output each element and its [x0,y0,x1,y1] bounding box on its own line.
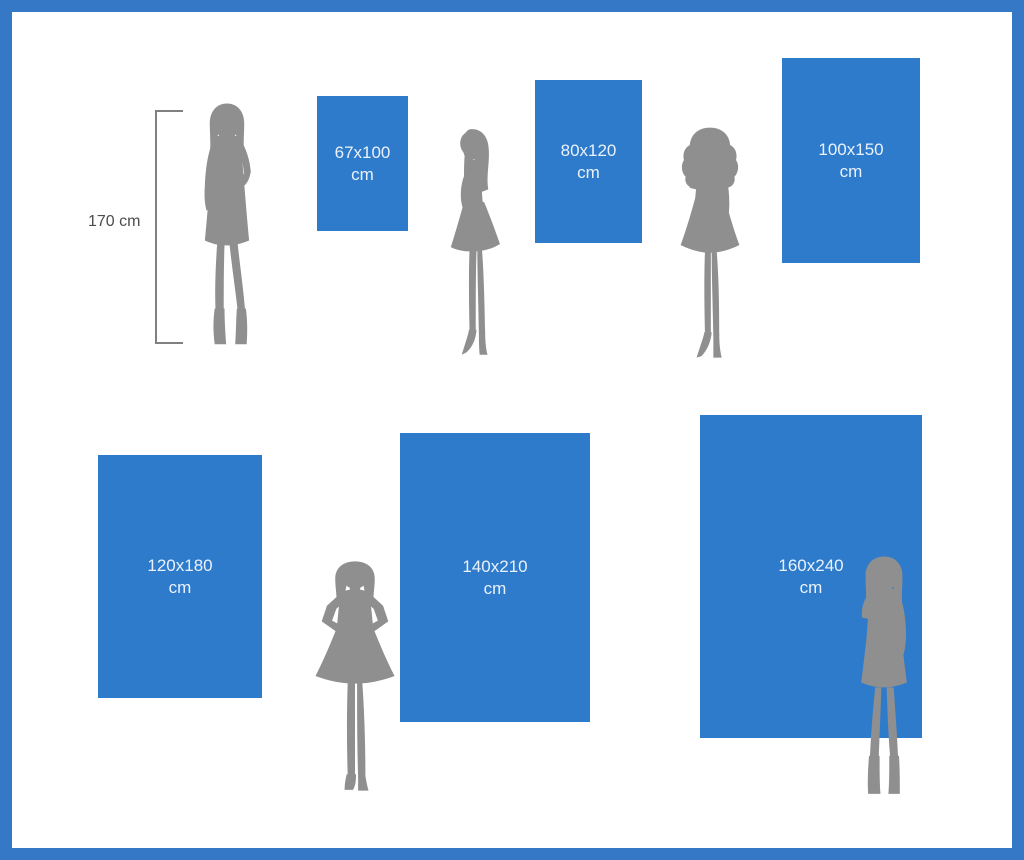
size-label: 120x180 [147,555,212,577]
woman-silhouette-front-boots-icon [186,101,268,350]
size-unit: cm [169,577,192,599]
size-label: 100x150 [818,139,883,161]
size-label: 80x120 [561,140,617,162]
size-unit: cm [484,578,507,600]
size-label: 160x240 [778,555,843,577]
woman-silhouette-profile-icon [436,127,514,361]
size-unit: cm [800,577,823,599]
size-rect-80x120: 80x120 cm [535,80,642,243]
size-unit: cm [840,161,863,183]
size-comparison-diagram: 170 cm 67x100 cm 80x120 cm [0,0,1024,860]
size-rect-100x150: 100x150 cm [782,58,920,263]
size-label: 140x210 [462,556,527,578]
woman-silhouette-hands-on-hips-icon [303,559,407,793]
woman-silhouette-hand-on-chin-icon [840,554,928,798]
size-unit: cm [577,162,600,184]
woman-silhouette-curly-hair-icon [668,126,752,364]
reference-height-label: 170 cm [88,213,152,231]
size-rect-67x100: 67x100 cm [317,96,408,231]
size-rect-140x210: 140x210 cm [400,433,590,722]
measure-bracket [155,110,185,344]
size-unit: cm [351,164,374,186]
size-label: 67x100 [335,142,391,164]
size-rect-120x180: 120x180 cm [98,455,262,698]
